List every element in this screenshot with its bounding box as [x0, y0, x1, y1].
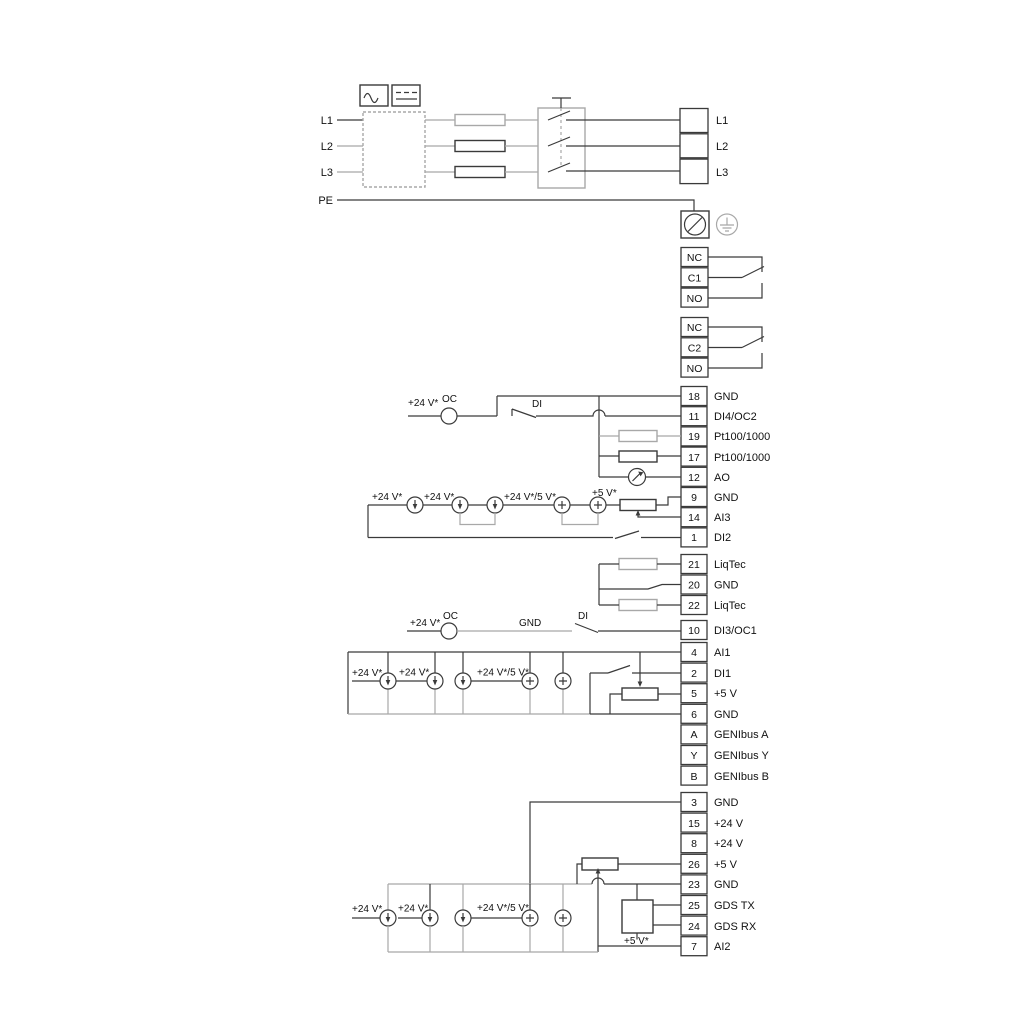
supply-annotation: +24 V*/5 V* — [477, 903, 529, 914]
di-annotation: DI — [578, 611, 588, 622]
wire-ai3 — [638, 515, 681, 517]
terminal-number: A — [690, 729, 697, 741]
mains-in-label-l2: L2 — [321, 141, 333, 153]
mains-out-label-l3: L3 — [716, 167, 728, 179]
emc-filter-box — [363, 112, 425, 187]
wiring-diagram-page: L1 L2 L3 PE — [0, 0, 1024, 1024]
supply-annotation: +24 V* — [424, 492, 454, 503]
terminal-label: +5 V — [714, 688, 738, 700]
terminal-number: 4 — [691, 647, 697, 659]
terminal-number: 1 — [691, 532, 697, 544]
ai1-di1-circuit: +24 V* +24 V* +24 V*/5 V* — [348, 652, 681, 714]
voltage-source-icon — [555, 673, 571, 689]
relay-1-block: NC C1 NO — [681, 248, 764, 308]
di4-switch-blade — [512, 409, 536, 418]
terminal-label: AO — [714, 472, 730, 484]
supply-annotation: +24 V* — [352, 904, 382, 915]
voltage-source-icon — [554, 497, 570, 513]
terminal-label: GND — [714, 879, 739, 891]
current-source-icon — [380, 910, 396, 926]
dc-symbol-icon — [392, 85, 420, 106]
terminal-label: Pt100/1000 — [714, 452, 770, 464]
current-source-icon — [422, 910, 438, 926]
open-collector-icon — [441, 408, 457, 424]
open-collector-icon — [441, 623, 457, 639]
terminal-label: +5 V — [714, 859, 738, 871]
wire-pot-to-gnd9 — [656, 497, 681, 505]
terminal-label: GND — [714, 391, 739, 403]
fuse-l3 — [455, 167, 505, 178]
gnd-rail-with-jump — [592, 878, 681, 884]
terminal-number: 20 — [688, 580, 700, 592]
relay2-no: NO — [687, 363, 703, 375]
io-terminal-block-1: 18 11 19 17 12 9 14 1 GND DI4/OC2 Pt100/… — [681, 387, 770, 547]
current-source-icon — [455, 673, 471, 689]
option-loops — [460, 513, 598, 525]
terminal-number: 11 — [689, 411, 700, 423]
voltage-source-icon — [590, 497, 606, 513]
fuse-l1 — [455, 115, 505, 126]
terminal-number: 18 — [688, 391, 700, 403]
terminal-number: 14 — [688, 512, 700, 524]
relay2-c2: C2 — [688, 343, 702, 355]
terminal-label: DI2 — [714, 532, 731, 544]
di3-switch-blade — [575, 624, 598, 633]
oc-annotation: OC — [443, 611, 458, 622]
earth-ground-icon — [717, 214, 738, 235]
supply-annotation: +24 V* — [408, 398, 438, 409]
wire-with-jump — [536, 410, 681, 416]
wire-l2-l3-in — [337, 146, 363, 172]
terminal-label: GND — [714, 580, 739, 592]
terminal-cell — [680, 134, 708, 158]
terminal-number: 23 — [688, 879, 700, 891]
terminal-number: 26 — [688, 859, 700, 871]
mains-in-label-l1: L1 — [321, 115, 333, 127]
terminal-number: Y — [690, 750, 697, 762]
terminal-label: GDS RX — [714, 921, 757, 933]
terminal-label: GND — [714, 709, 739, 721]
relay2-contact-blade — [742, 337, 764, 348]
relay1-contact-blade — [742, 267, 764, 278]
potentiometer — [582, 858, 618, 870]
wires-ai1-frame — [348, 652, 681, 714]
gnd-annotation: GND — [519, 618, 541, 629]
voltage-source-icon — [522, 673, 538, 689]
terminal-number: 5 — [691, 688, 697, 700]
mains-in-label-l3: L3 — [321, 167, 333, 179]
terminal-label: GENIbus B — [714, 771, 769, 783]
mains-out-label-l1: L1 — [716, 115, 728, 127]
wiring-diagram: L1 L2 L3 PE — [0, 0, 1024, 1024]
relay1-c1: C1 — [688, 273, 702, 285]
ai2-gds-circuit: +24 V* +24 V* +24 V*/5 V* +5 V* — [352, 802, 681, 952]
terminal-number: 24 — [688, 921, 700, 933]
terminal-number: 8 — [691, 838, 697, 850]
di4-pt100-ao-circuit: +24 V* OC DI — [408, 394, 681, 486]
terminal-number: 9 — [691, 492, 697, 504]
supply-annotation: +24 V* — [352, 668, 382, 679]
terminal-label: AI3 — [714, 512, 731, 524]
terminal-number: 3 — [691, 797, 697, 809]
wiper-arrow — [638, 682, 643, 688]
wires — [457, 396, 681, 416]
terminal-number: 19 — [688, 431, 700, 443]
relay2-wires — [708, 327, 762, 368]
terminal-label: GENIbus Y — [714, 750, 769, 762]
relay1-no: NO — [687, 293, 703, 305]
terminal-label: Pt100/1000 — [714, 431, 770, 443]
current-source-icon — [455, 910, 471, 926]
relay1-nc: NC — [687, 252, 703, 264]
terminal-number: 25 — [688, 900, 700, 912]
mains-terminal-block: L1 L2 L3 — [680, 109, 728, 184]
pt100-resistor-icon — [619, 431, 657, 442]
wires-filter-to-fuses — [425, 120, 455, 172]
relay2-nc: NC — [687, 322, 703, 334]
voltage-source-icon — [555, 910, 571, 926]
io-terminal-block-2: 4 2 5 6 A Y B AI1 DI1 +5 V GND GENIbus A… — [681, 643, 769, 786]
terminal-label: GND — [714, 492, 739, 504]
supply-annotation: +24 V* — [399, 668, 429, 679]
terminal-cell — [680, 109, 708, 133]
pe-terminal-icon — [681, 211, 709, 238]
liqtec-sensor-resistor — [619, 559, 657, 570]
terminal-label: LiqTec — [714, 559, 746, 571]
current-source-icon — [407, 497, 423, 513]
pt100-resistor-icon — [619, 451, 657, 462]
potentiometer — [622, 688, 658, 700]
terminal-number: B — [690, 771, 697, 783]
supply-annotation: +24 V* — [372, 492, 402, 503]
terminal-number: 6 — [691, 709, 697, 721]
terminal-label: GDS TX — [714, 900, 755, 912]
terminal-label: GND — [714, 797, 739, 809]
io-terminal-block-3: 3 15 8 26 23 25 24 7 GND +24 V +24 V +5 … — [681, 793, 757, 956]
main-switch — [538, 98, 585, 188]
wire-pe — [337, 200, 694, 211]
terminal-number: 10 — [688, 625, 700, 637]
supply-annotation: +24 V*/5 V* — [477, 668, 529, 679]
terminal-label: +24 V — [714, 838, 744, 850]
terminal-number: 21 — [688, 559, 700, 571]
ao-meter-icon — [629, 469, 646, 486]
gds-sensor-box — [622, 900, 653, 933]
current-source-icon — [427, 673, 443, 689]
di-annotation: DI — [532, 399, 542, 410]
wire-gnd3 — [530, 802, 681, 884]
wires — [388, 689, 563, 714]
terminal-number: 15 — [688, 818, 700, 830]
di3-circuit: 10 DI3/OC1 +24 V* OC GND DI — [407, 611, 757, 640]
terminal-label: AI1 — [714, 647, 731, 659]
terminal-number: 7 — [691, 941, 697, 953]
supply-annotation: +24 V*/5 V* — [504, 492, 556, 503]
terminal-number: 2 — [691, 668, 697, 680]
terminal-label: DI1 — [714, 668, 731, 680]
terminal-label: +24 V — [714, 818, 744, 830]
oc-annotation: OC — [442, 394, 457, 405]
current-source-icon — [487, 497, 503, 513]
current-source-icon — [452, 497, 468, 513]
fuse-l2 — [455, 141, 505, 152]
current-source-icon — [380, 673, 396, 689]
terminal-label: AI2 — [714, 941, 731, 953]
mains-in-label-pe: PE — [318, 195, 333, 207]
mains-section: L1 L2 L3 PE — [318, 85, 737, 238]
ai3-di2-circuit: +24 V* +24 V* +24 V*/5 V* +5 V* — [368, 488, 681, 539]
terminal-cell — [680, 159, 708, 184]
liqtec-terminal-block: 21 20 22 LiqTec GND LiqTec — [599, 555, 746, 615]
option-loops — [388, 926, 598, 952]
relay-2-block: NC C2 NO — [681, 318, 764, 378]
ac-symbol-icon — [360, 85, 388, 106]
di1-switch-blade — [608, 666, 630, 674]
relay1-wires — [708, 257, 762, 298]
wire-gnd20 — [599, 585, 681, 590]
voltage-source-icon — [522, 910, 538, 926]
terminal-label: DI4/OC2 — [714, 411, 757, 423]
liqtec-sensor-resistor — [619, 600, 657, 611]
di2-switch-blade — [615, 531, 639, 539]
supply-annotation: +24 V* — [410, 618, 440, 629]
terminal-number: 17 — [688, 452, 700, 464]
potentiometer — [620, 500, 656, 511]
mains-out-label-l2: L2 — [716, 141, 728, 153]
terminal-label: LiqTec — [714, 600, 746, 612]
terminal-label: GENIbus A — [714, 729, 769, 741]
terminal-number: 22 — [688, 600, 700, 612]
terminal-number: 12 — [688, 472, 700, 484]
terminal-label: DI3/OC1 — [714, 625, 757, 637]
